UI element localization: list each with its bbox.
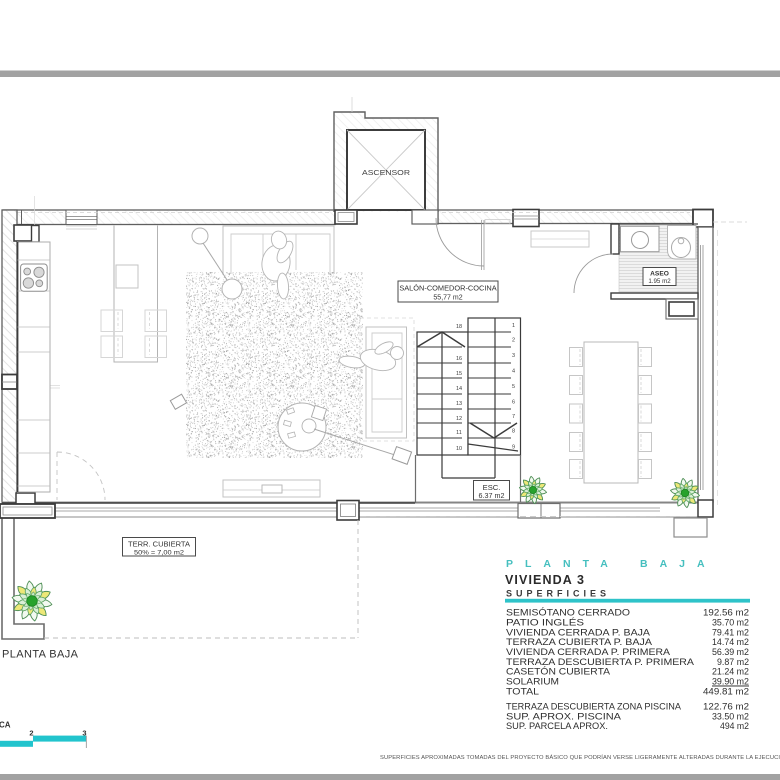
svg-text:PLANTA: PLANTA (506, 558, 620, 570)
svg-text:6: 6 (512, 400, 515, 406)
svg-text:2: 2 (29, 729, 33, 738)
svg-text:449.81 m2: 449.81 m2 (703, 686, 749, 697)
svg-text:494 m2: 494 m2 (720, 721, 749, 732)
svg-text:55,77 m2: 55,77 m2 (433, 295, 462, 302)
svg-text:1.95 m2: 1.95 m2 (648, 278, 671, 285)
svg-text:ASEO: ASEO (650, 271, 669, 278)
svg-text:18: 18 (456, 324, 462, 330)
svg-text:TERR. CUBIERTA: TERR. CUBIERTA (128, 540, 190, 549)
svg-text:13: 13 (456, 401, 462, 407)
svg-text:TOTAL: TOTAL (506, 686, 540, 697)
svg-text:2: 2 (512, 338, 515, 344)
svg-text:50% = 7,00 m2: 50% = 7,00 m2 (134, 550, 184, 557)
svg-text:BAJA: BAJA (640, 558, 717, 570)
svg-text:5: 5 (512, 384, 515, 390)
svg-text:VIVIENDA 3: VIVIENDA 3 (505, 573, 585, 587)
svg-text:SUPERFICIES: SUPERFICIES (506, 589, 610, 599)
svg-text:8: 8 (512, 429, 515, 435)
svg-text:11: 11 (456, 430, 462, 436)
svg-text:10: 10 (456, 446, 462, 452)
svg-text:3: 3 (512, 353, 515, 359)
svg-text:9: 9 (512, 445, 515, 451)
svg-text:7: 7 (512, 414, 515, 420)
svg-text:6.37 m2: 6.37 m2 (479, 491, 505, 500)
svg-text:14: 14 (456, 386, 462, 392)
svg-text:SUP. PARCELA APROX.: SUP. PARCELA APROX. (506, 721, 608, 732)
svg-text:ASCENSOR: ASCENSOR (362, 168, 410, 177)
svg-text:SALÓN-COMEDOR-COCINA: SALÓN-COMEDOR-COCINA (399, 284, 496, 293)
svg-text:12: 12 (456, 416, 462, 422)
svg-text:15: 15 (456, 371, 462, 377)
svg-text:16: 16 (456, 356, 462, 362)
svg-text:4: 4 (512, 369, 515, 375)
svg-text:CA: CA (0, 721, 11, 730)
svg-text:PLANTA BAJA: PLANTA BAJA (2, 649, 79, 661)
svg-text:1: 1 (512, 323, 515, 329)
svg-text:SUPERFICIES APROXIMADAS TOMADA: SUPERFICIES APROXIMADAS TOMADAS DEL PROY… (380, 754, 780, 761)
